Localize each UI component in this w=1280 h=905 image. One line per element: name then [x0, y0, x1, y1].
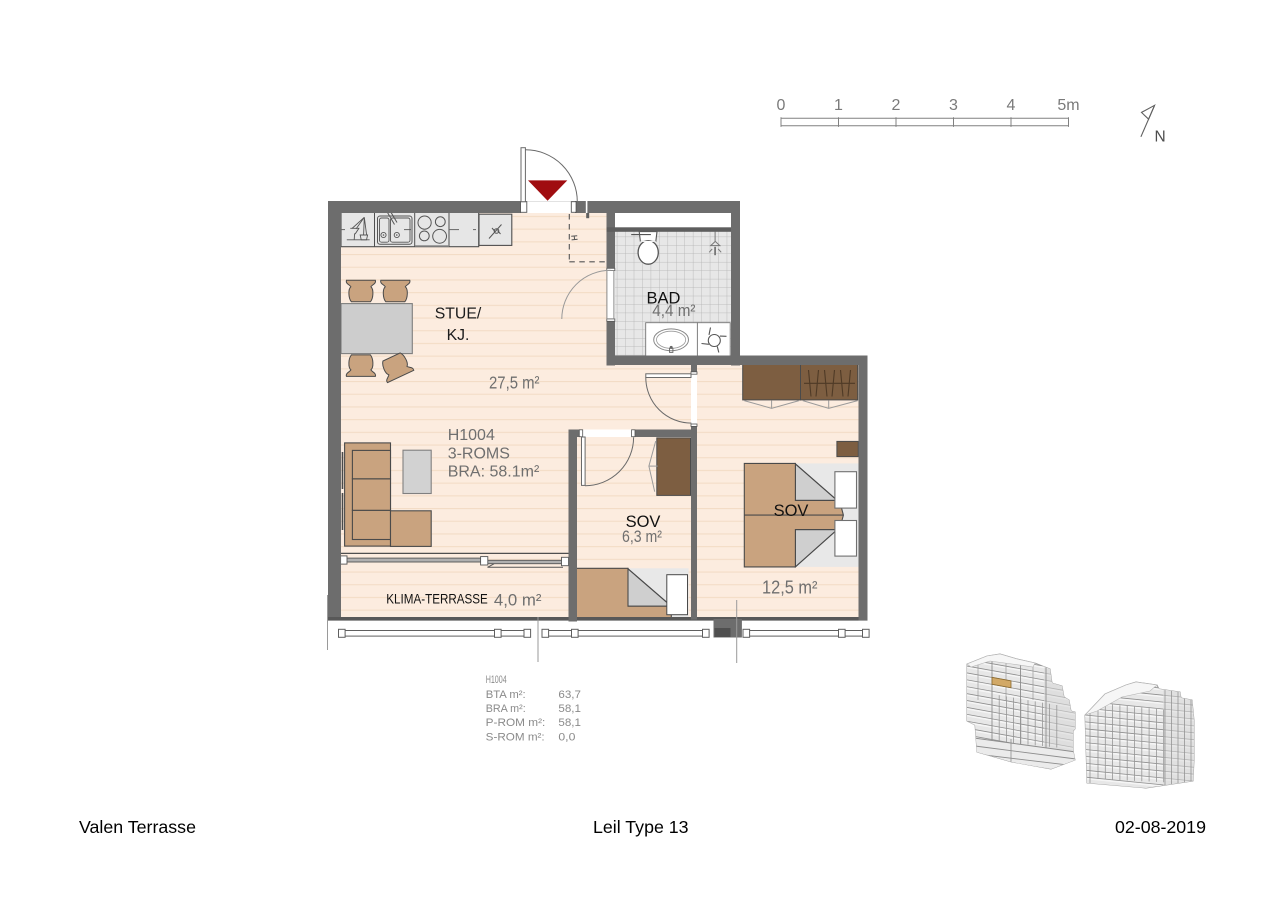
svg-text:KLIMA-TERRASSE: KLIMA-TERRASSE [386, 591, 488, 607]
svg-text:6,3 m²: 6,3 m² [622, 528, 662, 546]
svg-text:02-08-2019: 02-08-2019 [1115, 817, 1206, 837]
svg-text:0,0: 0,0 [558, 731, 575, 743]
svg-text:3-ROMS: 3-ROMS [448, 446, 510, 463]
svg-text:S-ROM m²:: S-ROM m²: [486, 731, 545, 743]
svg-text:H1004: H1004 [486, 674, 507, 686]
svg-text:Valen Terrasse: Valen Terrasse [79, 817, 196, 837]
svg-text:KJ.: KJ. [447, 327, 470, 344]
svg-text:58,1: 58,1 [558, 717, 581, 729]
svg-text:0: 0 [777, 97, 786, 114]
svg-text:4: 4 [1007, 97, 1016, 114]
svg-text:4,4 m²: 4,4 m² [652, 302, 696, 320]
svg-text:5m: 5m [1057, 97, 1079, 114]
svg-text:BTA m²:: BTA m²: [486, 689, 526, 701]
svg-text:SOV: SOV [774, 502, 809, 520]
svg-text:4,0 m²: 4,0 m² [494, 591, 542, 610]
svg-text:N: N [1155, 129, 1166, 146]
svg-text:Leil Type 13: Leil Type 13 [593, 817, 689, 837]
svg-text:3: 3 [949, 97, 958, 114]
svg-text:1: 1 [834, 97, 843, 114]
svg-text:STUE/: STUE/ [435, 306, 482, 323]
svg-text:12,5 m²: 12,5 m² [762, 578, 818, 598]
svg-text:27,5 m²: 27,5 m² [489, 373, 540, 393]
svg-text:2: 2 [892, 97, 901, 114]
svg-text:58,1: 58,1 [558, 703, 581, 715]
svg-text:P-ROM m²:: P-ROM m²: [486, 717, 546, 729]
svg-text:BRA: 58.1m²: BRA: 58.1m² [448, 464, 540, 481]
svg-text:BRA m²:: BRA m²: [486, 703, 526, 715]
svg-text:H1004: H1004 [448, 427, 495, 444]
svg-text:63,7: 63,7 [558, 689, 581, 701]
